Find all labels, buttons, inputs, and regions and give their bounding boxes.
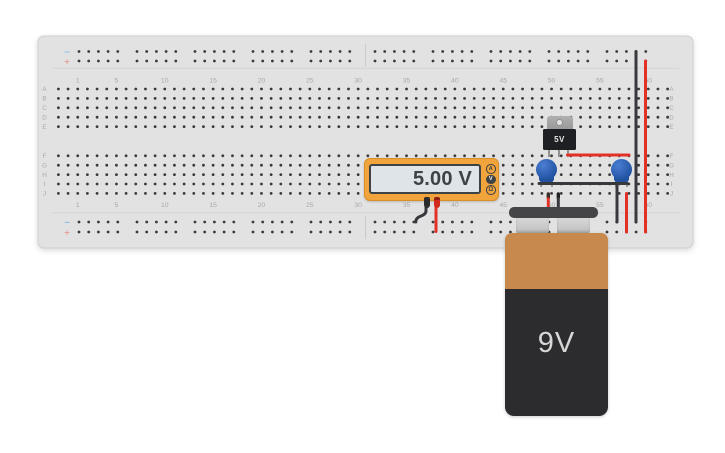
battery-label: 9V [505,327,608,360]
multimeter-black-lead-pin [424,197,430,208]
multimeter-red-lead-pin [434,197,440,208]
multimeter-mode-ohms-button[interactable]: Ω [486,185,496,195]
battery-top-cap [509,207,598,218]
wires-layer [0,0,725,453]
multimeter-mode-volts-button[interactable]: V [486,175,496,185]
battery-body: 9V [505,233,608,416]
battery-9v[interactable]: 9V [505,206,608,416]
multimeter[interactable]: 5.00 V A V Ω [364,158,499,201]
battery-terminal-snap [557,217,590,234]
multimeter-reading: 5.00 V [371,166,479,192]
battery-terminal-snap [516,217,549,234]
multimeter-mode-amps-button[interactable]: A [486,164,496,174]
multimeter-display: 5.00 V [369,164,481,194]
